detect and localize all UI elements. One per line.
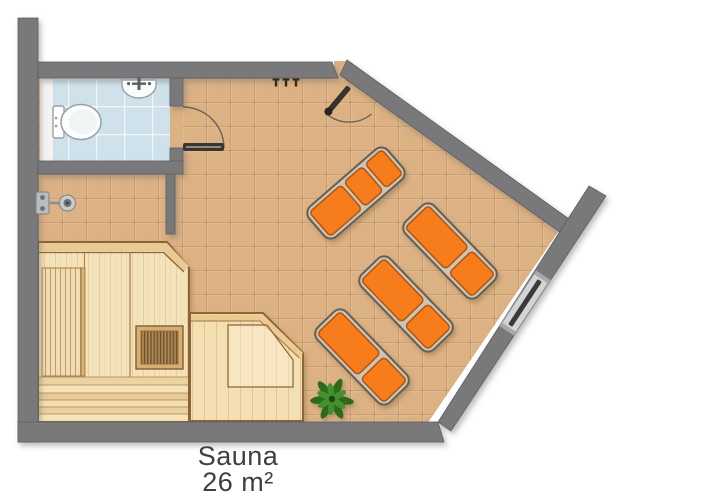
sauna-heater: [136, 326, 183, 369]
toilet: [53, 105, 101, 140]
sink: [122, 77, 156, 98]
room-label: Sauna 26 m²: [150, 443, 326, 495]
wall-left: [18, 18, 38, 442]
bathroom-shower-tray: [40, 78, 53, 161]
wall-bathroom-right-upper: [170, 78, 183, 106]
sauna-step-planks: [39, 377, 188, 421]
sauna-bench-planks: [42, 268, 82, 376]
room-name: Sauna: [150, 443, 326, 469]
bathroom-doorway-floor: [170, 106, 183, 148]
wall-bathroom-right-lower: [170, 148, 183, 162]
wall-hooks: [273, 79, 300, 87]
wall-bathroom-bottom: [38, 161, 183, 174]
sauna-cabin: [38, 242, 189, 422]
wall-bottom: [18, 422, 444, 442]
wall-top: [38, 62, 338, 78]
sauna-bench-edge: [81, 268, 85, 376]
wall-shower-stub: [166, 174, 175, 234]
sauna-floorplan: [0, 0, 703, 500]
floorplan-stage: Sauna 26 m²: [0, 0, 703, 500]
room-area: 26 m²: [150, 469, 326, 495]
